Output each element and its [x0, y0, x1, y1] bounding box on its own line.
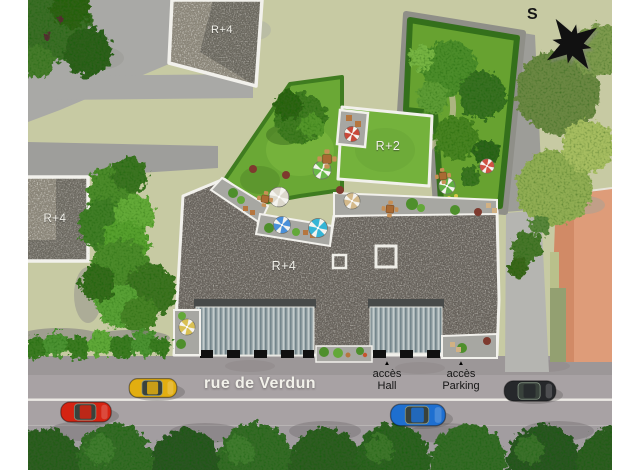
- parasol-icon: [439, 178, 455, 194]
- parasol-icon: [269, 187, 289, 207]
- access-hall-label: ▲ accès Hall: [360, 360, 414, 392]
- residential-site-plan[interactable]: R+4 R+4 R+4 R+2 rue de Verdun S ▲ accès …: [0, 0, 640, 470]
- ridged-roof: [196, 307, 314, 355]
- site-plan-svg: [0, 0, 640, 470]
- car-red: [61, 402, 111, 422]
- ridged-roof: [370, 307, 442, 353]
- car-yellow: [129, 379, 177, 398]
- access-hall-line1: accès: [373, 368, 402, 380]
- parasol-icon: [344, 193, 360, 209]
- car-black: [504, 381, 556, 401]
- r2-building: [337, 107, 432, 186]
- parasol-icon: [179, 319, 195, 335]
- car-blue: [391, 404, 446, 426]
- parasol-icon: [480, 159, 494, 173]
- west-building: [10, 177, 88, 261]
- parasol-icon: [344, 126, 359, 141]
- street-trees: [9, 423, 640, 470]
- access-hall-line2: Hall: [378, 380, 397, 392]
- parasol-icon: [273, 216, 290, 233]
- parasol-icon: [309, 219, 328, 238]
- access-parking-label: ▲ accès Parking: [432, 360, 490, 392]
- access-parking-marker: ▲: [432, 360, 490, 367]
- access-parking-line1: accès: [447, 368, 476, 380]
- parasol-icon: [313, 161, 331, 179]
- access-parking-line2: Parking: [442, 380, 479, 392]
- access-hall-marker: ▲: [360, 360, 414, 367]
- main-building: [174, 178, 499, 362]
